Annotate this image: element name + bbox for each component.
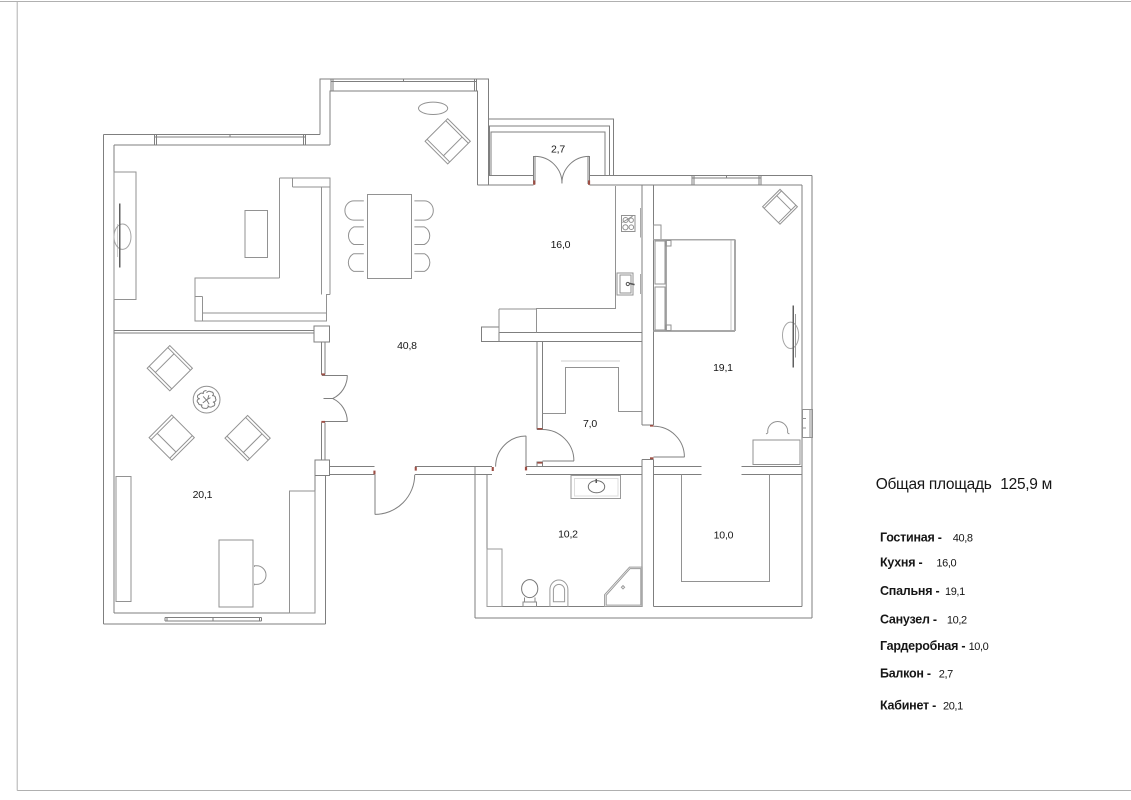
svg-text:2,7: 2,7 bbox=[551, 144, 565, 156]
svg-text:19,1: 19,1 bbox=[713, 362, 733, 374]
svg-text:Гардеробная - 10,0: Гардеробная - 10,0 bbox=[880, 639, 989, 653]
svg-text:7,0: 7,0 bbox=[583, 418, 597, 430]
svg-text:Гостиная - 40,8: Гостиная - 40,8 bbox=[880, 530, 973, 544]
svg-text:16,0: 16,0 bbox=[551, 239, 571, 251]
svg-text:Кабинет - 20,1: Кабинет - 20,1 bbox=[880, 699, 963, 713]
svg-text:Спальня - 19,1: Спальня - 19,1 bbox=[880, 584, 965, 598]
svg-text:40,8: 40,8 bbox=[397, 340, 417, 352]
svg-text:10,2: 10,2 bbox=[558, 529, 578, 541]
svg-text:Санузел - 10,2: Санузел - 10,2 bbox=[880, 612, 967, 626]
svg-text:10,0: 10,0 bbox=[714, 530, 734, 542]
svg-text:Кухня - 16,0: Кухня - 16,0 bbox=[880, 556, 956, 570]
svg-text:20,1: 20,1 bbox=[193, 489, 213, 501]
svg-text:Общая площадь125,9 м: Общая площадь125,9 м bbox=[876, 476, 1052, 493]
svg-text:Балкон - 2,7: Балкон - 2,7 bbox=[880, 666, 953, 680]
